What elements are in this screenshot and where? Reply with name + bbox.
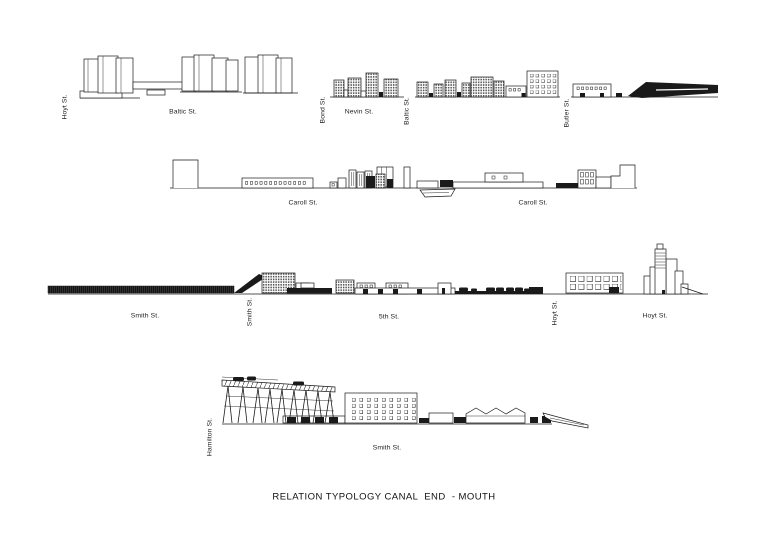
elevated-dark-band: [48, 286, 234, 293]
car-on-viaduct: [233, 377, 244, 381]
smith-5th-hoyt-elevation: [48, 244, 708, 294]
industrial-silo-tower: [644, 244, 703, 294]
black-ramp: [234, 274, 266, 293]
street-label-hoyt-st-row1: Hoyt St.: [63, 95, 70, 120]
street-label-caroll-st-right: Caroll St.: [519, 201, 548, 208]
street-label-hoyt-st-vertical: Hoyt St.: [553, 301, 560, 326]
rowhouse-strip-baltic-butler: [415, 71, 560, 97]
caroll-street-elevation: [170, 160, 637, 197]
street-label-caroll-st-left: Caroll St.: [289, 201, 318, 208]
street-label-bond-st: Bond St.: [321, 97, 328, 124]
street-label-butler-st: Butler St.: [565, 99, 572, 128]
street-label-smith-st-vertical: Smith St.: [248, 298, 255, 326]
car-on-viaduct: [293, 382, 304, 386]
drawing-title: RELATION TYPOLOGY CANAL END - MOUTH: [272, 492, 495, 503]
street-label-smith-st-row4: Smith St.: [373, 446, 401, 453]
tower-cluster-baltic: [80, 55, 298, 98]
parked-cars: [455, 288, 531, 295]
hamilton-smith-elevation: [222, 377, 588, 429]
canal-boat: [420, 189, 455, 197]
street-label-hoyt-st-row3: Hoyt St.: [643, 314, 668, 321]
elevation-drawing: [0, 0, 768, 542]
hoyt-office-building: [566, 273, 623, 293]
street-label-nevin-st: Nevin St.: [345, 110, 373, 117]
sawtooth-sheds: [466, 408, 525, 423]
street-label-baltic-st: Baltic St.: [169, 110, 197, 117]
car-on-viaduct: [247, 377, 256, 381]
shed-and-black-wedge-ramp: [571, 82, 718, 98]
rowhouse-strip-nevin: [330, 73, 404, 97]
smith-warehouse-building: [345, 393, 417, 423]
street-label-5th-st: 5th St.: [379, 315, 399, 322]
drawing-sheet: Hoyt St. Baltic St. Bond St. Nevin St. B…: [0, 0, 768, 542]
street-label-smith-st-row3: Smith St.: [131, 314, 159, 321]
street-label-hamilton-st: Hamilton St.: [208, 418, 215, 456]
street-label-baltic-st-vertical: Baltic St.: [405, 97, 412, 125]
